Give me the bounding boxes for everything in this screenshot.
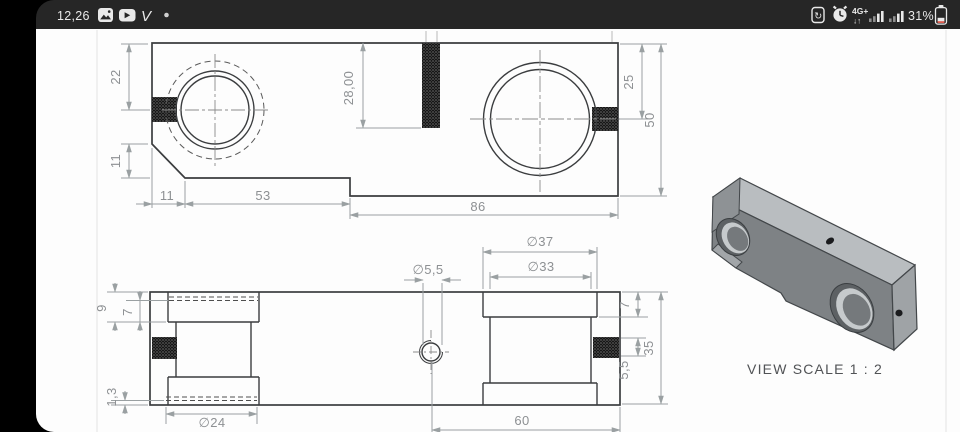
drawing-overlay: 12,26 V ↻ xyxy=(0,0,960,432)
svg-text:∅37: ∅37 xyxy=(527,234,554,249)
top-view-left-hole xyxy=(162,54,270,168)
vimeo-icon: V xyxy=(141,8,153,25)
front-view-left-hole xyxy=(168,292,259,405)
svg-text:5,5: 5,5 xyxy=(616,360,631,379)
battery-percent: 31% xyxy=(908,9,934,23)
svg-text:V: V xyxy=(141,8,153,25)
thread-section-middle xyxy=(422,43,440,128)
svg-text:22: 22 xyxy=(108,69,123,84)
more-notifications-dot xyxy=(164,13,169,18)
status-bar-content: 12,26 V ↻ xyxy=(57,5,947,26)
battery-icon xyxy=(936,5,947,24)
svg-text:↓↑: ↓↑ xyxy=(853,17,861,26)
top-view-outline xyxy=(152,43,618,196)
alarm-clock-icon xyxy=(833,6,846,21)
svg-text:∅5,5: ∅5,5 xyxy=(413,262,444,277)
svg-text:7: 7 xyxy=(120,308,135,316)
thread-section-left xyxy=(152,97,177,122)
network-type-indicator: 4G+ ↓↑ xyxy=(852,6,868,26)
front-view-right-hole xyxy=(483,292,597,405)
svg-text:↻: ↻ xyxy=(814,11,822,22)
svg-text:35: 35 xyxy=(641,340,656,355)
top-view-dimensions xyxy=(121,31,667,219)
svg-text:53: 53 xyxy=(255,188,270,203)
svg-text:60: 60 xyxy=(514,413,529,428)
svg-text:11: 11 xyxy=(108,154,123,168)
svg-text:25: 25 xyxy=(621,74,636,89)
svg-text:9: 9 xyxy=(94,304,109,312)
youtube-icon xyxy=(119,9,136,22)
svg-text:11: 11 xyxy=(160,188,174,203)
small-threaded-hole xyxy=(413,330,449,374)
battery-saver-icon: ↻ xyxy=(812,8,824,23)
svg-text:∅24: ∅24 xyxy=(199,415,226,430)
front-view-outline xyxy=(150,292,620,405)
svg-text:1,3: 1,3 xyxy=(104,387,119,406)
thread-section-front-right xyxy=(593,337,619,358)
svg-text:∅33: ∅33 xyxy=(528,259,555,274)
view-scale-caption: VIEW SCALE 1 : 2 xyxy=(747,361,883,377)
iso-end-small-hole xyxy=(895,310,902,317)
signal-bars-sim2-icon xyxy=(889,11,904,22)
gallery-icon xyxy=(98,8,113,22)
front-view-hidden-lines xyxy=(166,297,258,401)
iso-view: VIEW SCALE 1 : 2 xyxy=(710,178,917,377)
clock-time: 12,26 xyxy=(57,9,90,23)
svg-text:7: 7 xyxy=(617,301,632,309)
top-view: 22 11 11 53 86 28,00 25 50 xyxy=(108,31,667,219)
phone-screen: 12,26 V ↻ xyxy=(0,0,960,432)
svg-text:50: 50 xyxy=(642,112,657,127)
thread-section-front-left xyxy=(152,337,177,359)
front-view: 9 7 1,3 ∅24 ∅5,5 ∅37 ∅33 7 5,5 35 60 xyxy=(94,234,668,432)
svg-text:28,00: 28,00 xyxy=(341,71,356,106)
top-view-dimension-labels: 22 11 11 53 86 28,00 25 50 xyxy=(108,69,657,214)
svg-text:86: 86 xyxy=(470,199,485,214)
signal-bars-sim1-icon xyxy=(869,11,884,22)
svg-text:4G+: 4G+ xyxy=(852,6,868,16)
